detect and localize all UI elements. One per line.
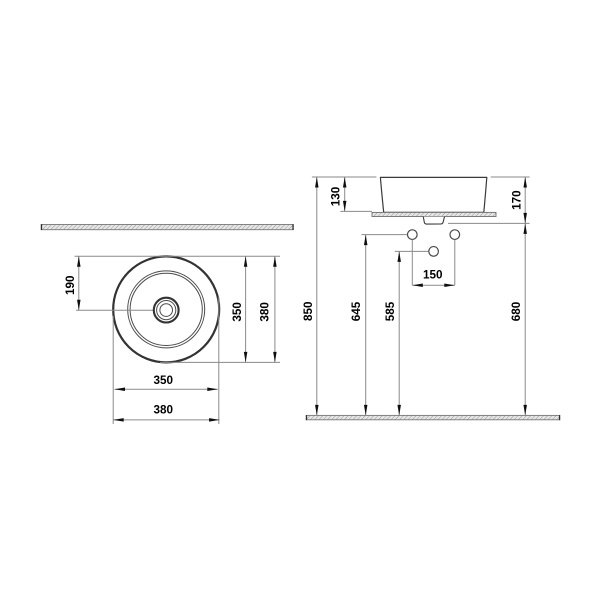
svg-text:585: 585 (384, 301, 397, 321)
svg-text:350: 350 (231, 302, 244, 322)
svg-text:680: 680 (510, 301, 523, 321)
svg-text:380: 380 (153, 403, 173, 416)
svg-text:350: 350 (154, 374, 174, 387)
svg-text:850: 850 (302, 301, 315, 321)
svg-text:190: 190 (64, 275, 77, 295)
svg-text:170: 170 (510, 190, 523, 210)
svg-text:380: 380 (259, 302, 272, 322)
svg-text:645: 645 (350, 301, 363, 321)
svg-text:130: 130 (330, 186, 343, 206)
svg-text:150: 150 (423, 269, 443, 282)
